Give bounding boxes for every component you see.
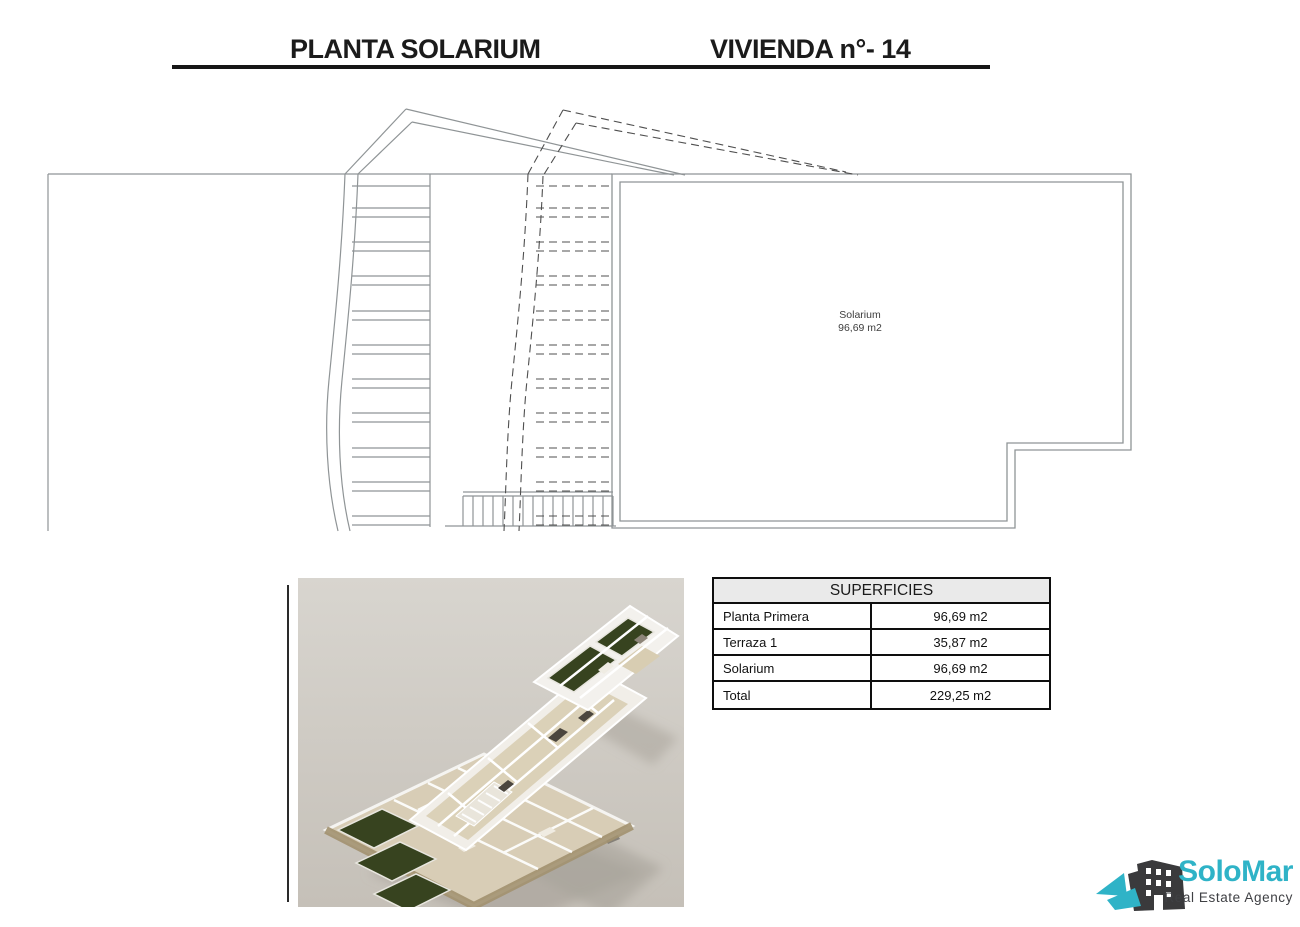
solomar-logo: SoloMar Real Estate Agency: [1083, 855, 1293, 905]
brand-name: SoloMar: [1083, 855, 1293, 889]
row-value: 96,69 m2: [872, 604, 1049, 628]
solid-stairs: [327, 174, 430, 531]
superficies-table: SUPERFICIES Planta Primera 96,69 m2 Terr…: [712, 577, 1051, 710]
terrace-outline: [48, 174, 612, 531]
row-label: Total: [714, 682, 872, 708]
railing: [445, 492, 616, 526]
table-title: SUPERFICIES: [714, 579, 1049, 604]
row-value: 35,87 m2: [872, 630, 1049, 654]
render-divider-line: [287, 585, 289, 902]
table-row: Planta Primera 96,69 m2: [714, 604, 1049, 630]
row-label: Terraza 1: [714, 630, 872, 654]
roof-gable-dashed: [528, 110, 858, 176]
table-row: Solarium 96,69 m2: [714, 656, 1049, 682]
table-row: Total 229,25 m2: [714, 682, 1049, 708]
table-row: Terraza 1 35,87 m2: [714, 630, 1049, 656]
room-area: 96,69 m2: [838, 322, 882, 334]
page: { "header": { "title_left": "PLANTA SOLA…: [0, 0, 1300, 927]
row-value: 229,25 m2: [872, 682, 1049, 708]
3d-floorplan-render: [298, 578, 684, 907]
row-value: 96,69 m2: [872, 656, 1049, 680]
dashed-stairs: [504, 174, 612, 531]
floor-plan-drawing: Solarium 96,69 m2: [0, 0, 1300, 560]
roof-gable-solid: [345, 109, 685, 175]
row-label: Solarium: [714, 656, 872, 680]
brand-tagline: Real Estate Agency: [1083, 890, 1293, 905]
solarium-outline: [612, 174, 1131, 528]
room-label: Solarium: [839, 309, 881, 321]
row-label: Planta Primera: [714, 604, 872, 628]
